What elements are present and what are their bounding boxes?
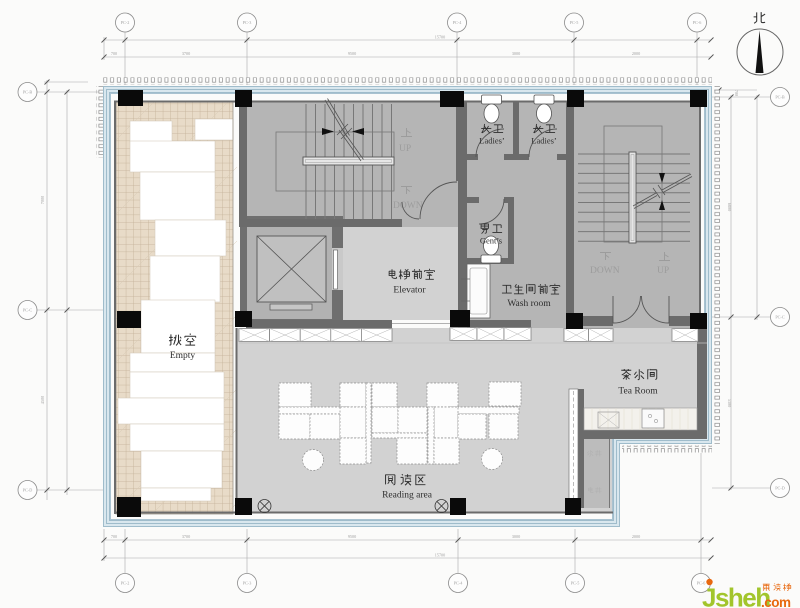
svg-text:Ladies’: Ladies’	[479, 136, 505, 146]
svg-text:700: 700	[111, 534, 117, 539]
svg-text:PC-D: PC-D	[775, 486, 785, 491]
svg-text:UP: UP	[399, 144, 411, 154]
svg-text:3700: 3700	[182, 534, 190, 539]
svg-text:PC-6: PC-6	[693, 20, 702, 25]
svg-text:5300: 5300	[727, 399, 732, 407]
svg-text:2000: 2000	[632, 534, 640, 539]
svg-text:PC-D: PC-D	[23, 488, 33, 493]
svg-text:UP: UP	[657, 266, 669, 276]
svg-text:2000: 2000	[632, 51, 640, 56]
svg-text:6800: 6800	[727, 203, 732, 211]
svg-text:9500: 9500	[348, 534, 356, 539]
svg-text:.com: .com	[761, 595, 791, 608]
svg-text:PC-5: PC-5	[570, 20, 579, 25]
svg-text:700: 700	[111, 51, 117, 56]
svg-text:PC-B: PC-B	[775, 95, 785, 100]
svg-text:9500: 9500	[348, 51, 356, 56]
svg-text:PC-2: PC-2	[121, 20, 130, 25]
svg-text:PC-C: PC-C	[23, 308, 33, 313]
svg-text:7000: 7000	[40, 196, 45, 204]
svg-text:PC-5: PC-5	[571, 581, 580, 586]
svg-text:Ladies’: Ladies’	[531, 136, 557, 146]
svg-text:PC-4: PC-4	[453, 20, 463, 25]
svg-text:Reading area: Reading area	[382, 491, 433, 501]
svg-text:Tea Room: Tea Room	[618, 387, 658, 397]
svg-text:DOWN: DOWN	[590, 266, 620, 276]
svg-text:4500: 4500	[40, 396, 45, 404]
svg-text:PC-3: PC-3	[243, 581, 252, 586]
svg-text:PC-B: PC-B	[23, 90, 33, 95]
svg-text:700: 700	[734, 90, 739, 96]
svg-text:Empty: Empty	[170, 351, 196, 361]
svg-text:Gent’s: Gent’s	[480, 236, 502, 246]
svg-text:DOWN: DOWN	[393, 201, 423, 211]
svg-text:Wash room: Wash room	[507, 299, 551, 309]
svg-text:PC-2: PC-2	[121, 581, 130, 586]
svg-text:Elevator: Elevator	[393, 286, 426, 296]
svg-text:15700: 15700	[435, 35, 445, 40]
svg-text:3000: 3000	[512, 534, 520, 539]
svg-text:3000: 3000	[512, 51, 520, 56]
svg-text:3700: 3700	[182, 51, 190, 56]
svg-text:PC-C: PC-C	[775, 315, 785, 320]
svg-text:PC-4: PC-4	[454, 581, 464, 586]
svg-text:15700: 15700	[435, 553, 445, 558]
svg-text:PC-3: PC-3	[243, 20, 252, 25]
